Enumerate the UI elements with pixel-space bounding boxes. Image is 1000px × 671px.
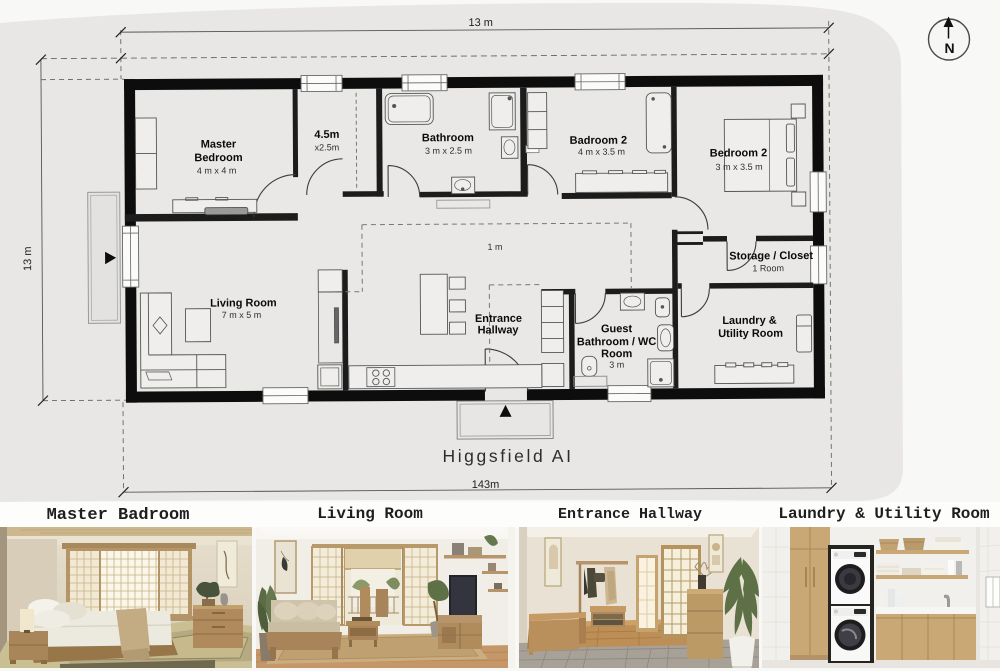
svg-text:Living Room: Living Room xyxy=(317,505,423,523)
svg-text:Master Badroom: Master Badroom xyxy=(47,506,190,525)
svg-text:4 m x 3.5 m: 4 m x 3.5 m xyxy=(578,147,625,157)
svg-text:Living Room: Living Room xyxy=(210,297,277,309)
svg-text:Entrance: Entrance xyxy=(475,313,522,325)
svg-text:Bedroom 2: Bedroom 2 xyxy=(710,147,768,159)
svg-text:13 m: 13 m xyxy=(22,246,34,271)
svg-text:4.5m: 4.5m xyxy=(314,129,339,141)
svg-text:Room: Room xyxy=(601,348,632,360)
svg-text:Guest: Guest xyxy=(601,323,633,335)
svg-text:Master: Master xyxy=(201,138,237,150)
svg-text:13 m: 13 m xyxy=(468,17,493,29)
svg-text:Laundry & Utility Room: Laundry & Utility Room xyxy=(778,505,990,523)
svg-text:3 m: 3 m xyxy=(609,360,624,370)
svg-text:Badroom 2: Badroom 2 xyxy=(570,135,628,147)
svg-text:1 Room: 1 Room xyxy=(752,263,784,273)
svg-text:1 m: 1 m xyxy=(488,242,503,252)
svg-text:Storage / Closet: Storage / Closet xyxy=(729,250,813,263)
svg-text:4 m x 4 m: 4 m x 4 m xyxy=(197,165,237,175)
svg-text:3 m x 2.5 m: 3 m x 2.5 m xyxy=(425,146,472,156)
svg-text:Laundry &: Laundry & xyxy=(722,315,777,327)
svg-text:Higgsfield AI: Higgsfield AI xyxy=(442,446,573,466)
svg-text:Bedroom: Bedroom xyxy=(194,152,243,164)
svg-text:N: N xyxy=(944,40,954,56)
svg-text:Bathroom / WC: Bathroom / WC xyxy=(577,336,657,348)
svg-text:Entrance Hallway: Entrance Hallway xyxy=(558,506,702,523)
svg-text:x2.5m: x2.5m xyxy=(315,142,340,152)
svg-text:143m: 143m xyxy=(472,479,500,491)
svg-text:Hallway: Hallway xyxy=(478,324,520,336)
svg-text:3 m x 3.5 m: 3 m x 3.5 m xyxy=(716,162,763,172)
svg-text:Bathroom: Bathroom xyxy=(422,132,474,144)
svg-text:Utility Room: Utility Room xyxy=(718,328,783,340)
svg-text:7 m x 5 m: 7 m x 5 m xyxy=(222,310,262,320)
